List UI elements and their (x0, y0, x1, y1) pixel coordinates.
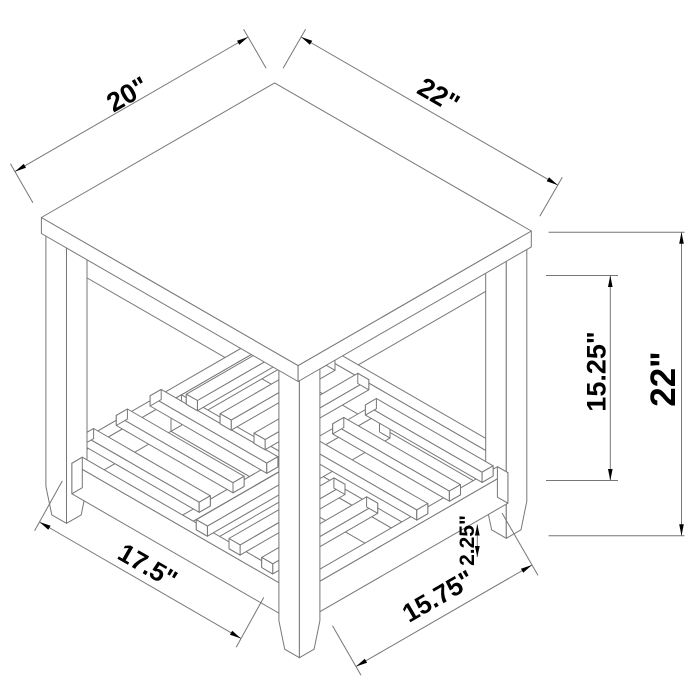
svg-text:15.25": 15.25" (582, 331, 612, 411)
svg-text:2.25": 2.25" (456, 515, 479, 566)
svg-text:22": 22" (644, 351, 683, 407)
